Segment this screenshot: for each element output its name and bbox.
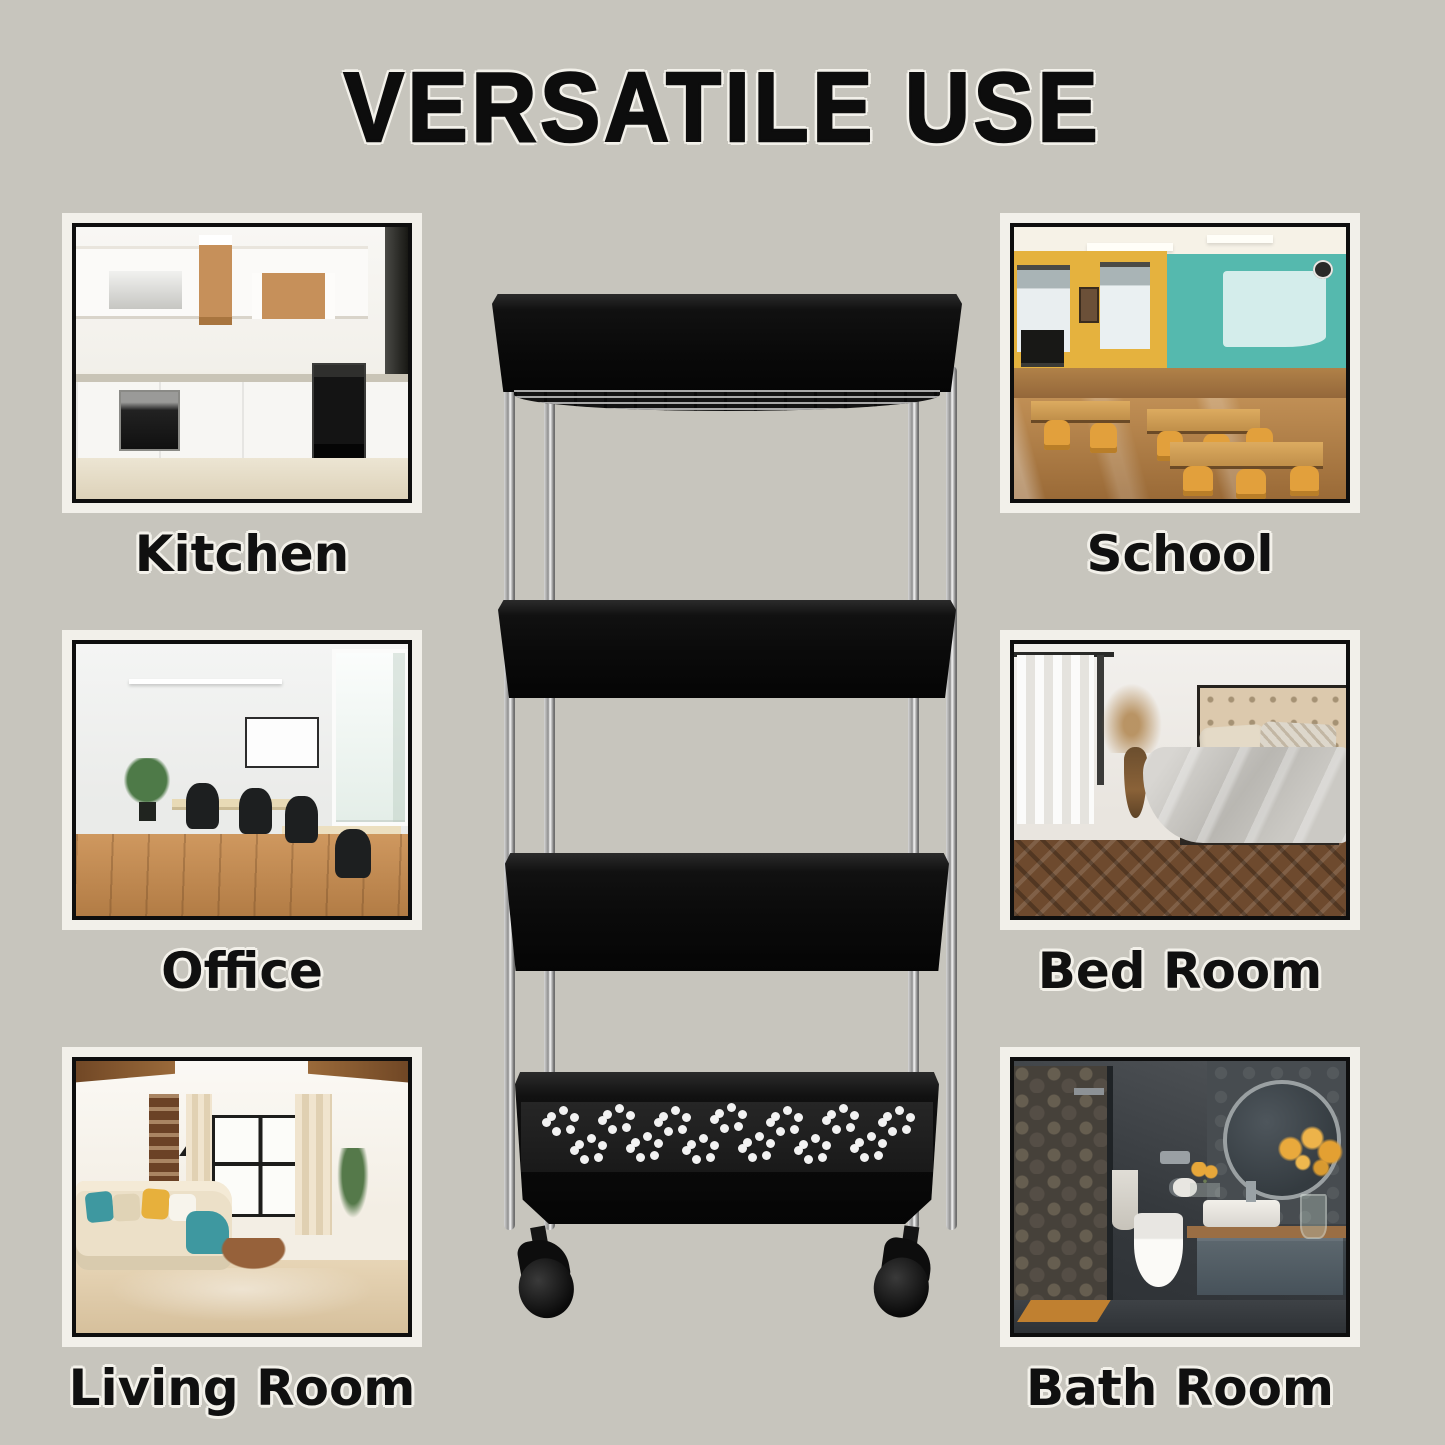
plant	[122, 758, 172, 807]
bathroom-label: Bath Room	[1000, 1359, 1360, 1417]
flower-perforation	[743, 1138, 752, 1147]
wood-counter	[1014, 368, 1346, 398]
tv-screen	[1021, 330, 1064, 367]
flower-perforation	[715, 1109, 724, 1118]
card-school: School	[1000, 213, 1360, 583]
shower-head	[1074, 1088, 1104, 1095]
wood-shelf	[252, 273, 335, 319]
cushion-beige	[112, 1194, 140, 1223]
ceiling-light	[1087, 243, 1173, 251]
flower-perforation	[547, 1112, 556, 1121]
page-title: VERSATILE USE	[58, 56, 1387, 159]
window-edge	[385, 227, 408, 379]
ceiling-light	[1207, 235, 1273, 243]
coffee-table	[215, 1238, 291, 1273]
yellow-flowers	[1270, 1126, 1343, 1202]
flush-plate	[1160, 1151, 1190, 1165]
basin	[1203, 1200, 1279, 1227]
faucet	[1246, 1181, 1256, 1203]
caster-wheel	[508, 1221, 583, 1322]
chair	[1044, 420, 1071, 450]
ceiling-wood-trim	[76, 1061, 176, 1083]
kitchen-photo-frame	[62, 213, 422, 513]
range-hood	[109, 271, 182, 309]
card-office: Office	[62, 630, 422, 1000]
duvet	[1143, 747, 1346, 842]
office-photo	[72, 640, 412, 920]
chair	[1090, 423, 1117, 453]
livingroom-photo	[72, 1057, 412, 1337]
office-chair	[186, 783, 219, 829]
office-photo-frame	[62, 630, 422, 930]
wall-art	[245, 717, 319, 767]
oven	[119, 390, 179, 451]
office-chair	[239, 788, 272, 834]
floor	[76, 458, 408, 499]
card-livingroom: Living Room	[62, 1047, 422, 1417]
card-bathroom: Bath Room	[1000, 1047, 1360, 1417]
flower-perforation	[631, 1138, 640, 1147]
picture-frame	[1079, 287, 1100, 324]
caster-wheel	[870, 1222, 942, 1321]
floor-reflection	[109, 1268, 375, 1322]
school-photo-frame	[1000, 213, 1360, 513]
flower-perforation	[771, 1112, 780, 1121]
herringbone-floor	[1014, 840, 1346, 916]
kitchen-label: Kitchen	[62, 525, 422, 583]
flower-perforation	[687, 1140, 696, 1149]
wire-shelf	[514, 390, 940, 411]
classroom-window	[1100, 262, 1150, 349]
livingroom-scene	[76, 1061, 408, 1333]
table	[1170, 442, 1323, 466]
flower-perforation	[575, 1140, 584, 1149]
table	[1031, 401, 1131, 420]
livingroom-label: Living Room	[62, 1359, 422, 1417]
card-bedroom: Bed Room	[1000, 630, 1360, 1000]
chair	[1183, 466, 1213, 496]
wood-shelf	[199, 235, 232, 325]
card-kitchen: Kitchen	[62, 213, 422, 583]
bedroom-photo-frame	[1000, 630, 1360, 930]
plant-pot	[139, 802, 156, 821]
cushion-yellow	[141, 1188, 170, 1220]
perforated-deck	[521, 1102, 933, 1172]
flower-perforation	[855, 1138, 864, 1147]
product-infographic: VERSATILE USE Kitchen	[0, 0, 1445, 1445]
office-chair	[285, 796, 318, 842]
bathroom-photo-frame	[1000, 1047, 1360, 1347]
school-label: School	[1000, 525, 1360, 583]
vanity-cabinet	[1197, 1238, 1346, 1295]
cart-basket-2	[498, 600, 956, 698]
glass-vase	[1300, 1194, 1327, 1239]
chair	[1236, 469, 1266, 499]
oven-tower	[312, 363, 366, 462]
chrome-pole	[946, 366, 957, 1230]
ceiling-wood-trim	[308, 1061, 408, 1083]
whiteboard	[1223, 271, 1326, 347]
bathroom-scene	[1014, 1061, 1346, 1333]
plant	[335, 1148, 372, 1224]
cushion-teal	[84, 1190, 114, 1223]
sheer-curtain	[295, 1094, 332, 1235]
wall-clock	[1313, 260, 1333, 279]
cart-bottom-basket	[515, 1072, 939, 1224]
office-scene	[76, 644, 408, 916]
chrome-pole	[504, 366, 515, 1230]
flower-perforation	[827, 1110, 836, 1119]
cart-basket-3	[505, 853, 949, 971]
livingroom-photo-frame	[62, 1047, 422, 1347]
kitchen-photo	[72, 223, 412, 503]
storage-cart-image	[488, 288, 966, 1318]
ceiling-light	[129, 679, 282, 684]
tall-window	[332, 649, 408, 826]
flower-perforation	[659, 1112, 668, 1121]
dried-flowers	[1100, 682, 1163, 753]
orange-mat	[1017, 1300, 1110, 1322]
cart-top-basket	[492, 294, 962, 392]
flower-perforation	[883, 1112, 892, 1121]
curtain	[1017, 655, 1093, 824]
bathroom-photo	[1010, 1057, 1350, 1337]
table	[1147, 409, 1260, 431]
small-flowers	[1190, 1162, 1220, 1197]
flower-perforation	[799, 1140, 808, 1149]
kitchen-scene	[76, 227, 408, 499]
flower-perforation	[603, 1110, 612, 1119]
bedroom-scene	[1014, 644, 1346, 916]
chair	[1290, 466, 1320, 496]
school-scene	[1014, 227, 1346, 499]
toilet	[1134, 1213, 1184, 1286]
pebble-shower-wall	[1014, 1066, 1113, 1300]
office-chair	[335, 829, 372, 878]
bedroom-label: Bed Room	[1000, 942, 1360, 1000]
school-photo	[1010, 223, 1350, 503]
bedroom-photo	[1010, 640, 1350, 920]
office-label: Office	[62, 942, 422, 1000]
